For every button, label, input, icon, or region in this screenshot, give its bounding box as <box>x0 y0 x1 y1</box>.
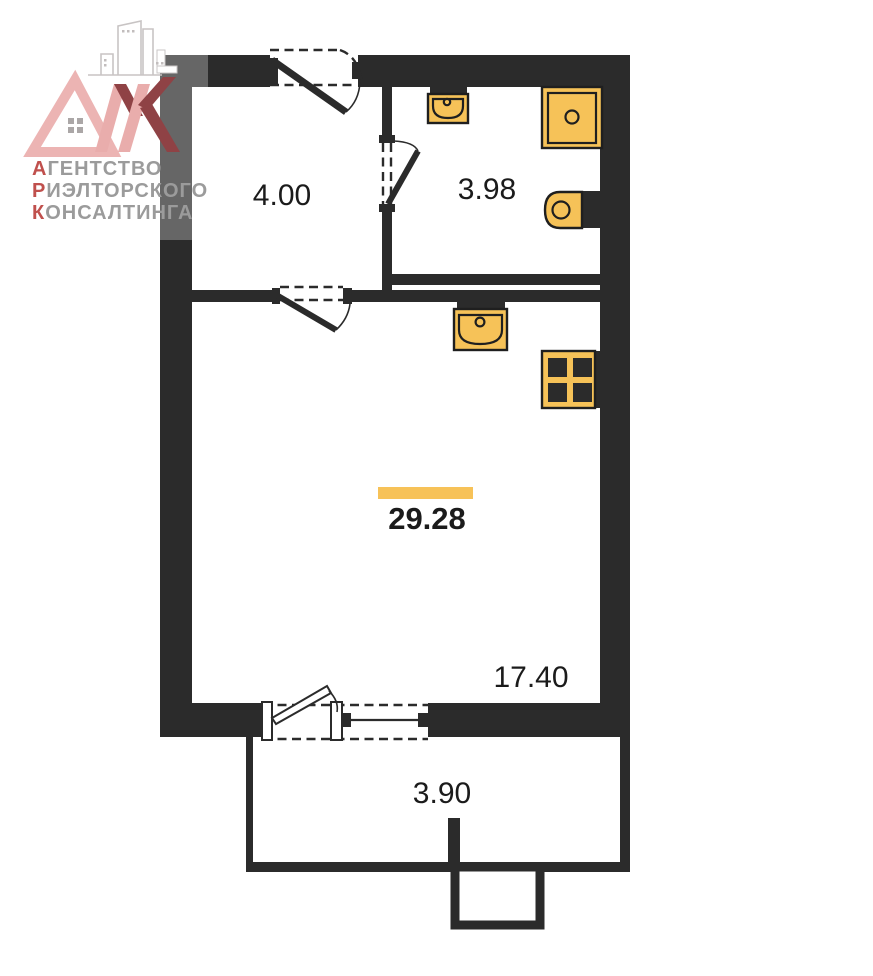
bathroom-door <box>379 135 418 212</box>
logo: АГЕНТСТВО РИЭЛТОРСКОГО КОНСАЛТИНГА <box>6 2 208 240</box>
logo-graphic <box>6 2 208 162</box>
stove <box>542 351 603 408</box>
wall-bottom-right <box>428 703 630 737</box>
balcony-door-post-right <box>331 702 342 740</box>
shower-tray <box>542 87 602 148</box>
living-room-area-label: 17.40 <box>493 661 568 694</box>
wall-right <box>600 55 630 737</box>
bathroom-jamb-top <box>379 135 395 143</box>
stove-burner-3 <box>548 383 567 402</box>
bathroom-jamb-bottom <box>379 204 395 212</box>
total-area-label: 29.28 <box>388 501 466 536</box>
floor-plan-page: 4.00 3.98 29.28 17.40 3.90 <box>0 0 873 976</box>
stove-burner-4 <box>573 383 592 402</box>
stove-mount <box>595 351 603 408</box>
logo-tagline-line1: АГЕНТСТВО <box>32 158 208 180</box>
stove-burner-1 <box>548 358 567 377</box>
wall-top-right <box>358 55 630 87</box>
balcony-door-window <box>262 686 428 740</box>
window-frame-right <box>418 713 428 727</box>
bathroom-area-label: 3.98 <box>458 173 516 206</box>
logo-window-grid <box>68 118 83 133</box>
living-room-door <box>272 287 352 330</box>
wall-mid-left <box>160 290 272 302</box>
wall-balcony-stub <box>448 818 460 868</box>
toilet-tank <box>582 191 602 228</box>
living-jamb-right <box>343 288 352 304</box>
balcony-annex-box <box>455 867 540 925</box>
toilet-bowl <box>545 192 582 228</box>
logo-building-icon <box>88 21 164 75</box>
wall-balcony-right <box>620 737 630 867</box>
wall-bathroom-floor <box>382 274 603 285</box>
entrance-door-arc <box>346 82 360 112</box>
bathroom-sink <box>428 87 468 123</box>
walls <box>160 55 630 872</box>
entrance-jamb-right <box>352 62 360 79</box>
total-area-marker <box>378 487 473 499</box>
wall-balcony-left <box>246 737 253 867</box>
toilet <box>545 191 602 228</box>
balcony-area-label: 3.90 <box>413 777 471 810</box>
bathroom-door-arc <box>394 141 418 151</box>
logo-tagline-line2: РИЭЛТОРСКОГО <box>32 180 208 202</box>
logo-tagline: АГЕНТСТВО РИЭЛТОРСКОГО КОНСАЛТИНГА <box>32 158 208 224</box>
hallway-area-label: 4.00 <box>253 179 311 212</box>
balcony-door-post-left <box>262 702 272 740</box>
kitchen-sink <box>454 302 507 350</box>
bathroom-door-leaf <box>388 151 418 204</box>
logo-tagline-line3: КОНСАЛТИНГА <box>32 202 208 224</box>
logo-monogram <box>32 77 180 152</box>
wall-mid-right <box>352 290 630 302</box>
wall-balcony-bottom <box>246 862 630 872</box>
stove-burner-2 <box>573 358 592 377</box>
living-door-arc <box>336 304 350 330</box>
shower-body <box>542 87 602 148</box>
wall-bottom-left <box>160 703 263 737</box>
wall-divider-lower <box>382 212 392 292</box>
wall-divider-upper <box>382 87 392 135</box>
entrance-door <box>270 50 362 112</box>
window-frame-left <box>342 713 351 727</box>
